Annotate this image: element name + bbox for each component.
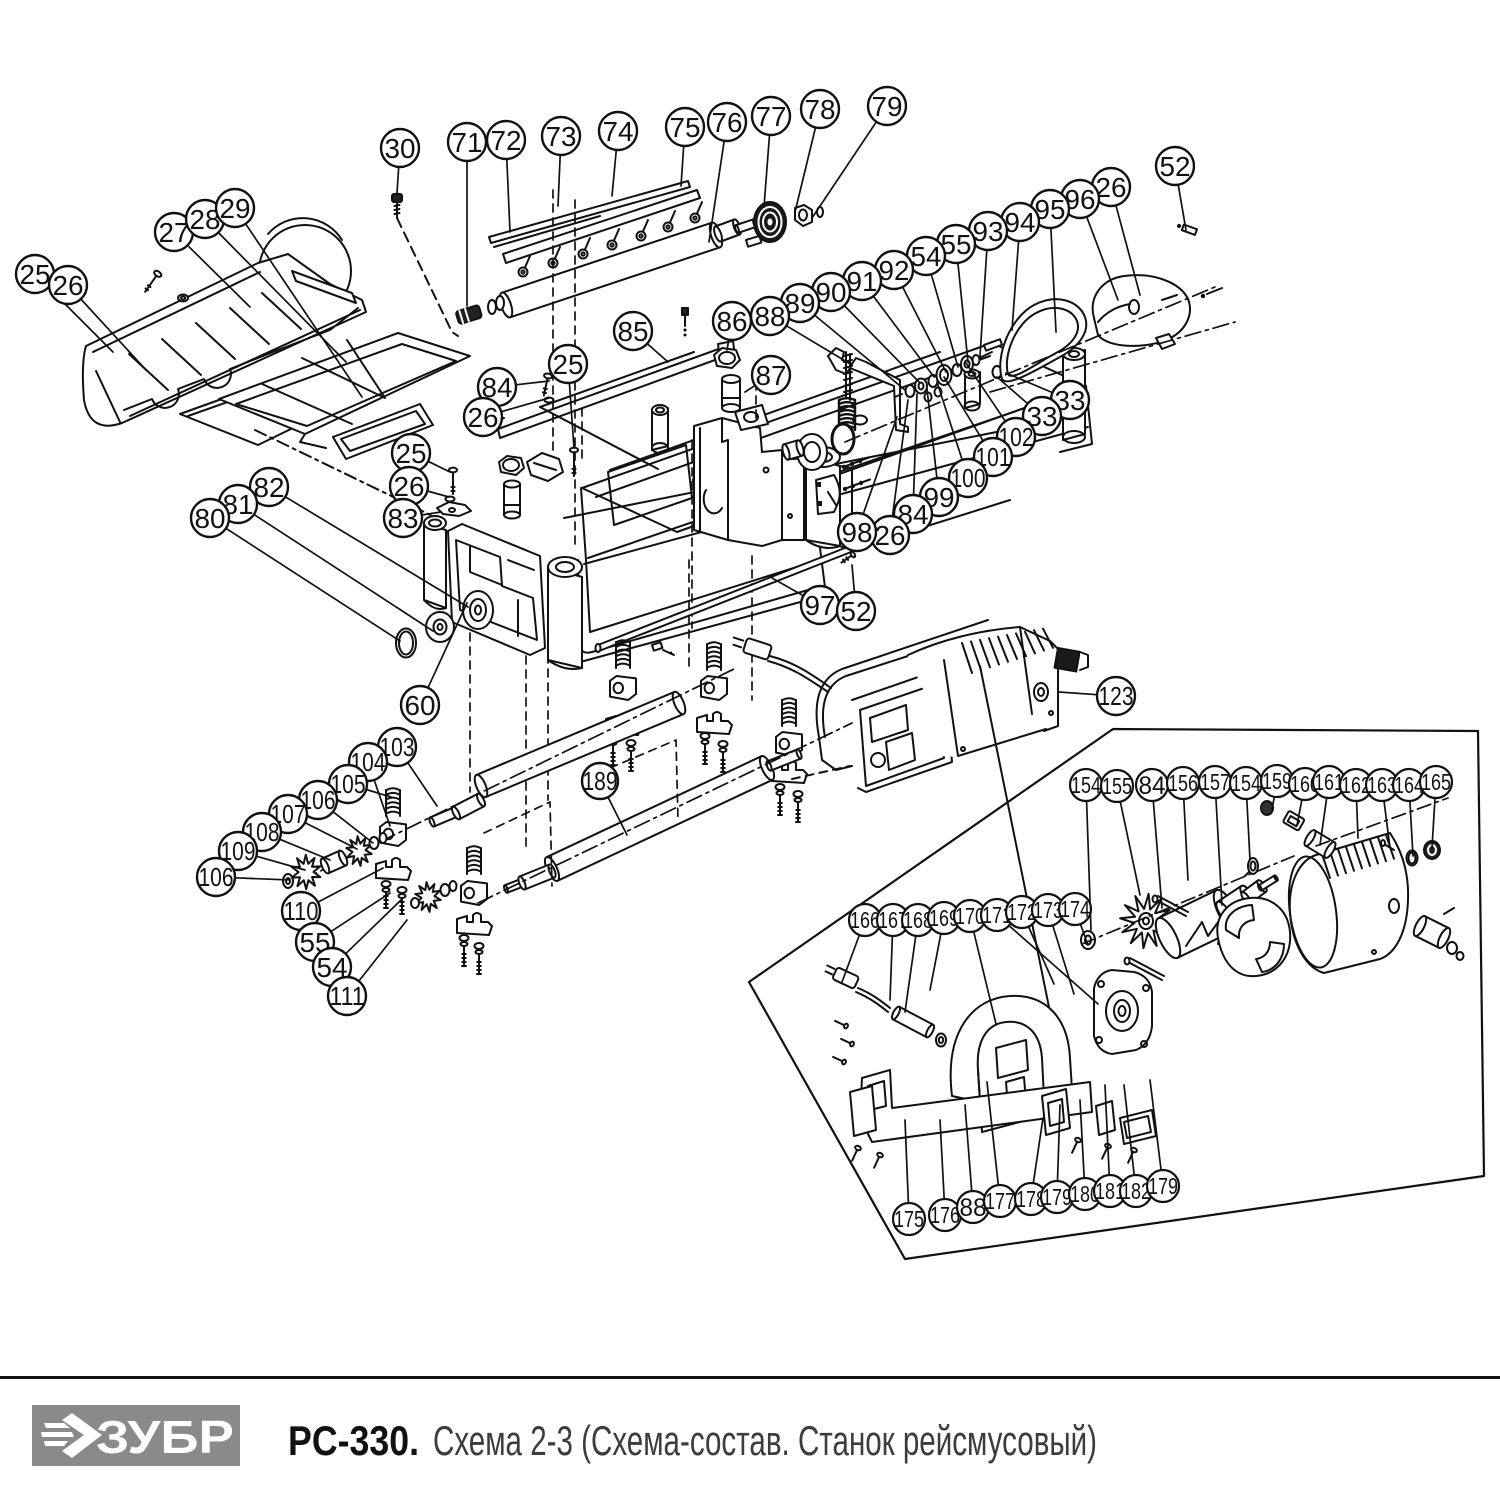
svg-text:79: 79 <box>872 91 903 122</box>
svg-text:54: 54 <box>911 241 942 272</box>
svg-text:176: 176 <box>930 1202 960 1228</box>
svg-text:25: 25 <box>553 349 584 380</box>
svg-text:83: 83 <box>388 503 419 534</box>
svg-text:82: 82 <box>254 472 285 503</box>
svg-text:98: 98 <box>842 517 873 548</box>
svg-text:29: 29 <box>220 193 251 224</box>
svg-text:71: 71 <box>452 127 483 158</box>
svg-text:PC-330.: PC-330. <box>288 1417 419 1464</box>
svg-text:179: 179 <box>1042 1184 1072 1210</box>
svg-text:154: 154 <box>1231 770 1261 796</box>
svg-text:111: 111 <box>330 981 365 1011</box>
svg-text:123: 123 <box>1099 681 1134 711</box>
svg-text:52: 52 <box>1160 151 1191 182</box>
svg-text:155: 155 <box>1102 773 1132 799</box>
svg-text:106: 106 <box>199 862 234 892</box>
svg-text:84: 84 <box>1139 772 1166 800</box>
svg-text:177: 177 <box>985 1188 1015 1214</box>
svg-text:94: 94 <box>1005 207 1036 238</box>
svg-text:166: 166 <box>850 907 880 933</box>
svg-text:60: 60 <box>405 690 436 721</box>
svg-text:30: 30 <box>385 133 416 164</box>
svg-text:26: 26 <box>394 471 425 502</box>
svg-text:175: 175 <box>894 1206 924 1232</box>
svg-text:189: 189 <box>583 766 618 796</box>
svg-text:88: 88 <box>960 1194 987 1222</box>
svg-text:72: 72 <box>491 125 522 156</box>
svg-text:86: 86 <box>717 306 748 337</box>
svg-text:26: 26 <box>875 520 906 551</box>
svg-text:179: 179 <box>1148 1173 1178 1199</box>
svg-text:165: 165 <box>1421 769 1451 795</box>
svg-text:154: 154 <box>1071 772 1101 798</box>
svg-text:110: 110 <box>284 896 319 926</box>
svg-text:ЗУБР: ЗУБР <box>96 1411 234 1463</box>
svg-text:156: 156 <box>1168 770 1198 796</box>
svg-text:80: 80 <box>195 503 226 534</box>
svg-text:Схема 2-3 (Схема-состав. Стано: Схема 2-3 (Схема-состав. Станок рейсмусо… <box>433 1417 1097 1464</box>
svg-text:77: 77 <box>756 101 787 132</box>
svg-text:88: 88 <box>755 301 786 332</box>
svg-text:78: 78 <box>805 94 836 125</box>
svg-text:157: 157 <box>1200 769 1230 795</box>
svg-text:25: 25 <box>396 438 427 469</box>
svg-text:26: 26 <box>53 270 84 301</box>
svg-text:25: 25 <box>20 259 51 290</box>
svg-text:27: 27 <box>159 217 190 248</box>
svg-text:159: 159 <box>1262 768 1292 794</box>
svg-text:92: 92 <box>879 255 910 286</box>
svg-text:74: 74 <box>603 116 634 147</box>
svg-text:52: 52 <box>841 596 872 627</box>
svg-text:174: 174 <box>1060 896 1090 922</box>
svg-text:85: 85 <box>618 316 649 347</box>
svg-text:97: 97 <box>805 590 836 621</box>
svg-text:75: 75 <box>670 112 701 143</box>
svg-text:26: 26 <box>468 402 499 433</box>
svg-text:76: 76 <box>712 107 743 138</box>
svg-text:87: 87 <box>756 360 787 391</box>
svg-text:73: 73 <box>546 121 577 152</box>
svg-text:93: 93 <box>973 216 1004 247</box>
